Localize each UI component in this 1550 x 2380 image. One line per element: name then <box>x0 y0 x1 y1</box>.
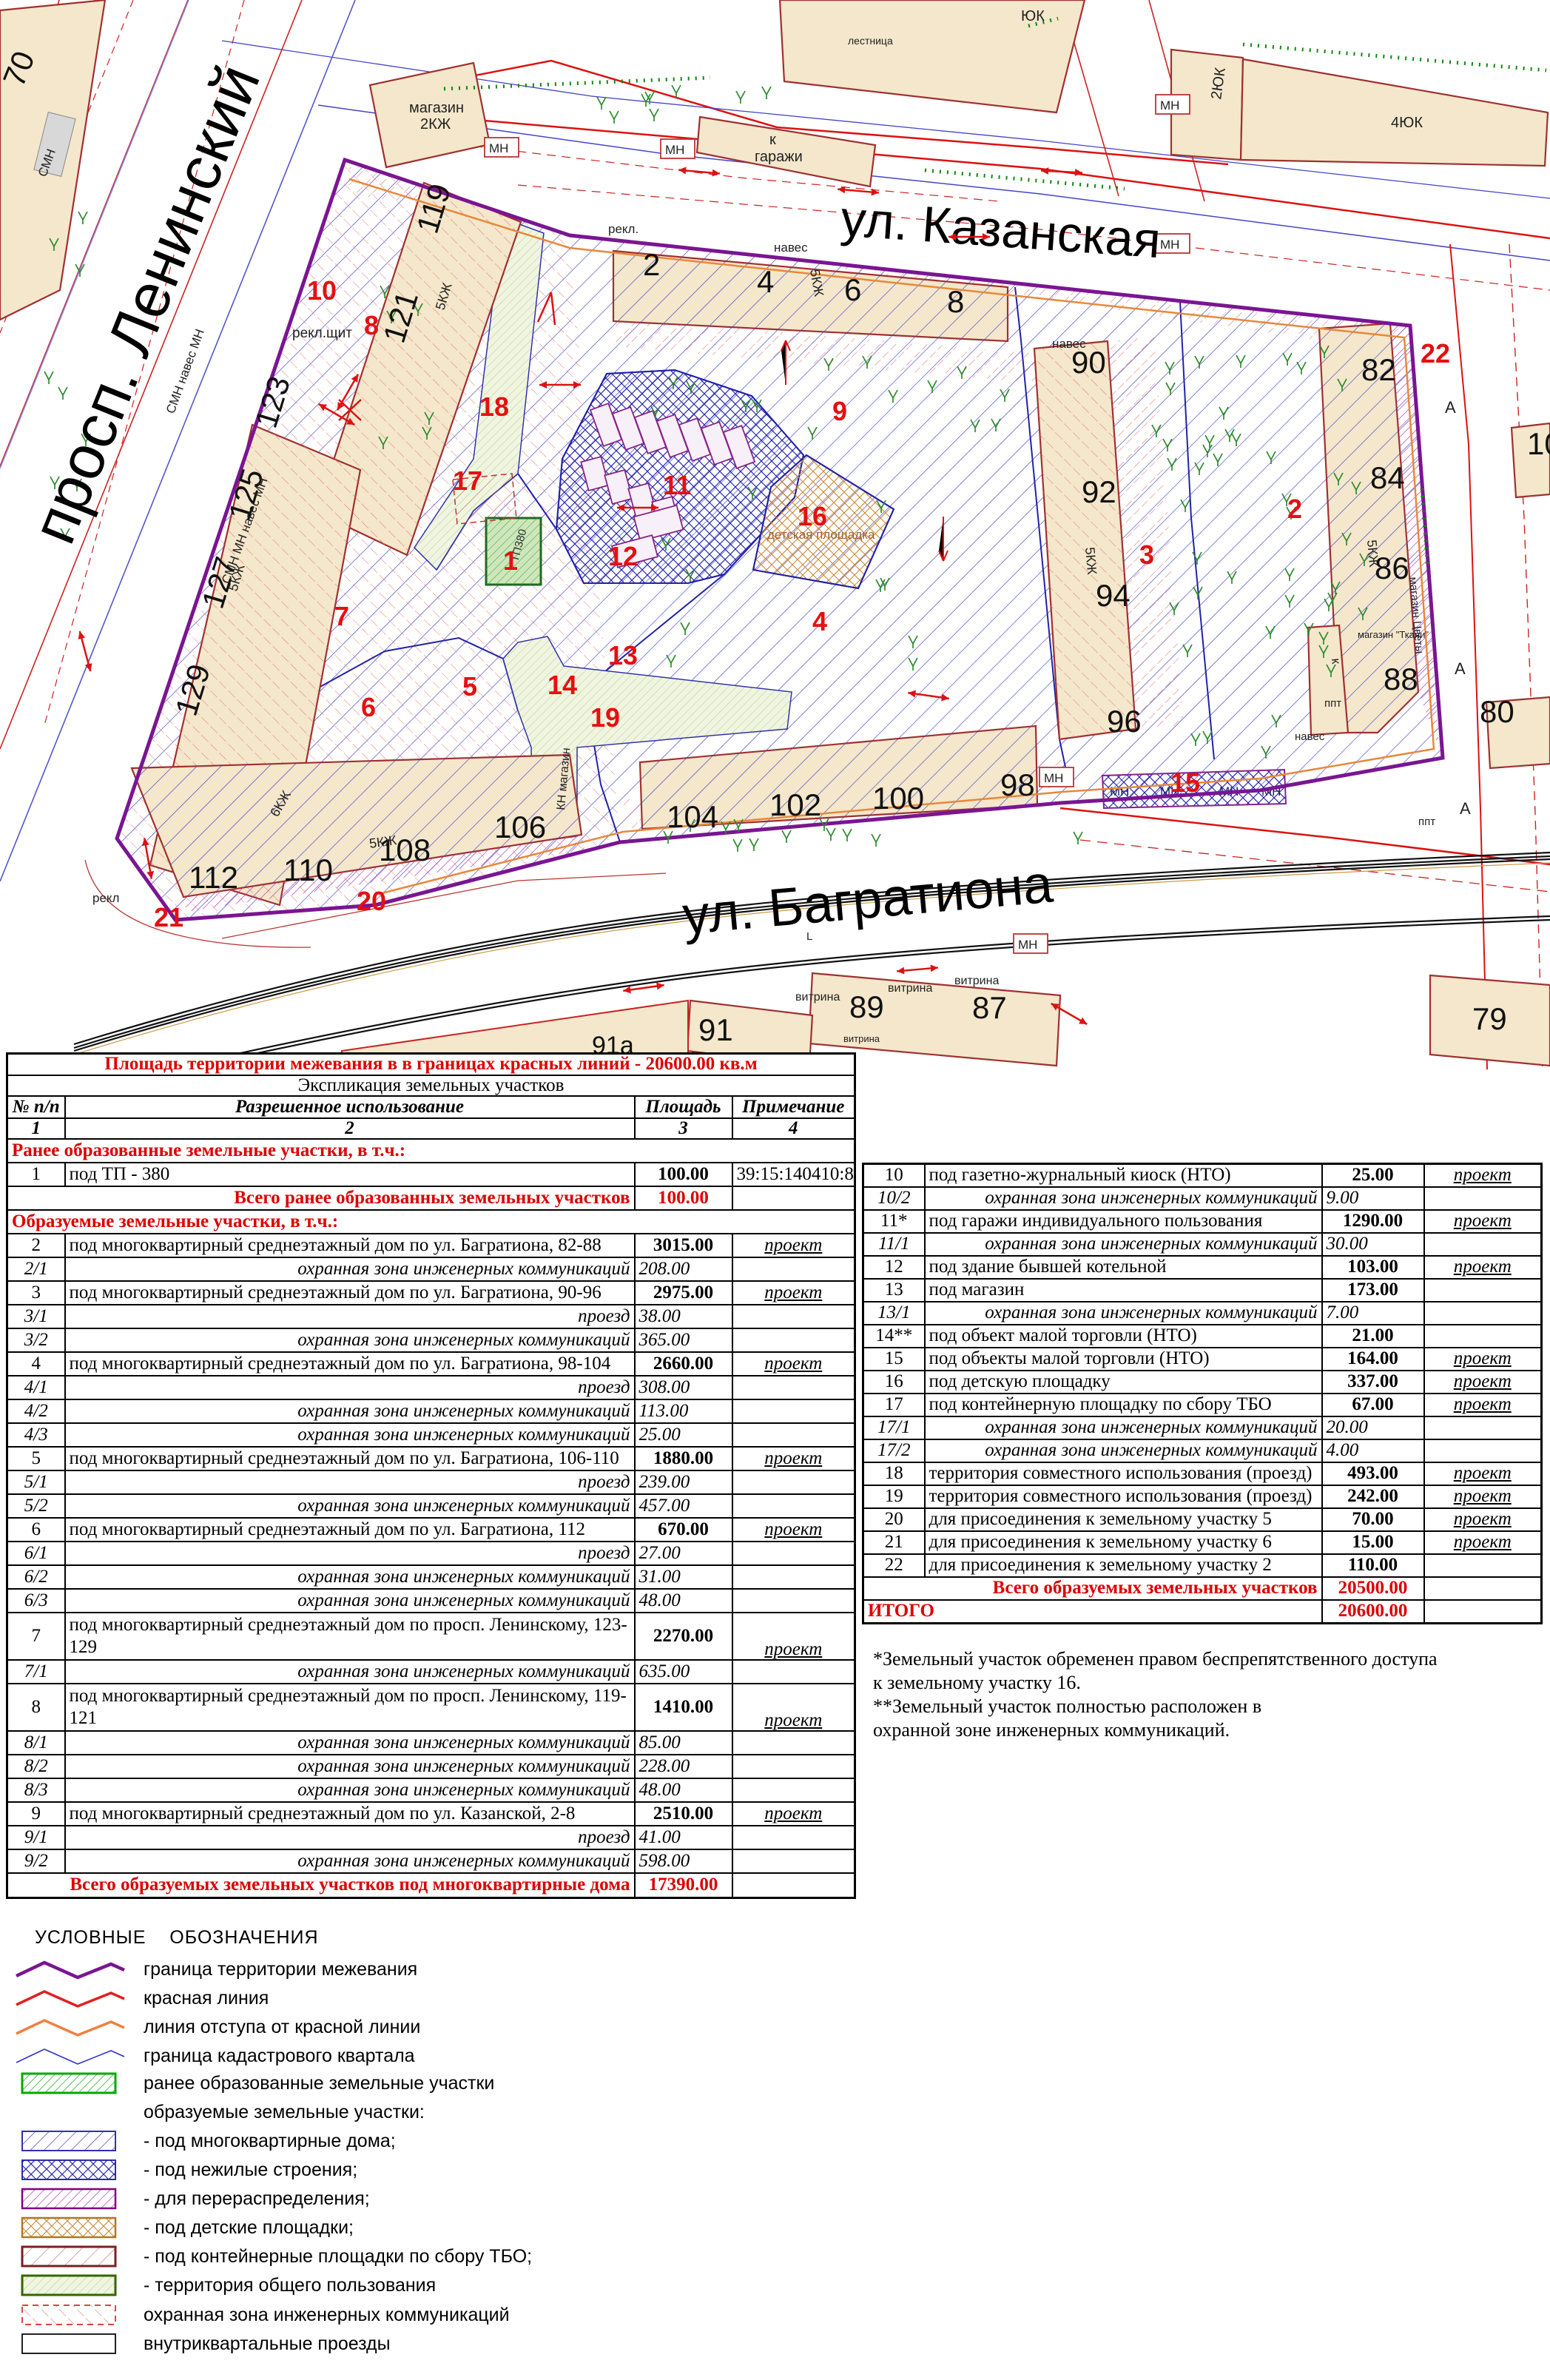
svg-text:102: 102 <box>769 787 821 822</box>
svg-text:94: 94 <box>1096 578 1131 613</box>
svg-text:МН: МН <box>1160 238 1179 252</box>
svg-text:100: 100 <box>872 781 924 816</box>
svg-text:20: 20 <box>357 886 386 916</box>
svg-text:- под детские площадки;: - под детские площадки; <box>144 2217 354 2238</box>
svg-text:ранее образованные земельные у: ранее образованные земельные участки <box>144 2073 494 2094</box>
svg-text:граница кадастрового квартала: граница кадастрового квартала <box>144 2045 415 2066</box>
svg-text:22: 22 <box>1421 338 1450 369</box>
svg-text:- под нежилые строения;: - под нежилые строения; <box>144 2159 357 2180</box>
svg-text:89: 89 <box>849 989 884 1024</box>
svg-text:к: к <box>769 132 776 148</box>
svg-text:- территория общего пользовани: - территория общего пользования <box>144 2275 436 2296</box>
svg-text:навес: навес <box>1052 337 1086 351</box>
svg-text:106: 106 <box>494 810 546 844</box>
svg-text:рекл.: рекл. <box>608 222 638 236</box>
svg-text:А: А <box>1455 659 1466 678</box>
svg-text:витрина: витрина <box>843 1033 880 1044</box>
svg-text:104: 104 <box>667 799 718 834</box>
svg-text:4ЮК: 4ЮК <box>1391 115 1423 131</box>
svg-text:2: 2 <box>643 247 660 282</box>
svg-text:МН: МН <box>665 143 684 157</box>
svg-text:7: 7 <box>334 601 349 631</box>
svg-text:5КЖ: 5КЖ <box>1082 547 1099 576</box>
svg-text:84: 84 <box>1370 460 1405 495</box>
svg-text:ппт: ппт <box>1418 816 1435 828</box>
svg-text:МН: МН <box>1018 938 1037 952</box>
svg-text:88: 88 <box>1384 662 1418 696</box>
svg-text:10: 10 <box>1527 426 1550 461</box>
svg-text:8: 8 <box>364 310 379 340</box>
svg-text:рекл.щит: рекл.щит <box>292 326 352 341</box>
svg-text:80: 80 <box>1480 694 1514 729</box>
svg-text:линия отступа от красной линии: линия отступа от красной линии <box>144 2017 420 2037</box>
svg-text:граница территории межевания: граница территории межевания <box>144 1959 417 1980</box>
svg-text:4: 4 <box>757 264 774 299</box>
svg-text:13: 13 <box>608 640 638 670</box>
svg-text:15: 15 <box>1170 767 1200 798</box>
svg-text:17: 17 <box>453 465 482 496</box>
svg-text:лестница: лестница <box>848 35 893 47</box>
svg-text:14: 14 <box>547 670 577 700</box>
svg-text:92: 92 <box>1082 474 1116 509</box>
svg-text:витрина: витрина <box>888 982 932 995</box>
svg-text:- под многоквартирные дома;: - под многоквартирные дома; <box>144 2131 396 2151</box>
svg-text:А: А <box>1460 799 1471 818</box>
svg-text:9: 9 <box>832 396 847 426</box>
svg-text:МН: МН <box>1110 784 1129 799</box>
svg-text:82: 82 <box>1361 352 1396 387</box>
svg-text:1: 1 <box>503 545 518 576</box>
svg-text:магазин: магазин <box>409 100 464 116</box>
svg-text:гаражи: гаражи <box>755 149 803 165</box>
svg-text:98: 98 <box>1000 767 1035 802</box>
svg-text:11: 11 <box>663 470 691 500</box>
svg-text:2КЖ: 2КЖ <box>420 116 451 132</box>
svg-text:2: 2 <box>1287 494 1302 524</box>
svg-text:навес: навес <box>1295 730 1325 743</box>
svg-text:внутриквартальные проезды: внутриквартальные проезды <box>144 2333 391 2354</box>
svg-text:87: 87 <box>972 990 1007 1025</box>
svg-text:16: 16 <box>798 501 827 531</box>
svg-text:магазин "Ткани": магазин "Ткани" <box>1358 629 1429 640</box>
svg-text:МН: МН <box>489 141 508 155</box>
svg-text:витрина: витрина <box>795 991 840 1004</box>
svg-text:рекл: рекл <box>92 891 119 905</box>
svg-text:110: 110 <box>283 853 333 887</box>
svg-text:- под контейнерные площадки по: - под контейнерные площадки по сбору ТБО… <box>144 2246 532 2267</box>
svg-text:ЮК: ЮК <box>1021 8 1045 24</box>
svg-text:МН: МН <box>1160 98 1179 112</box>
svg-text:ппт: ппт <box>1324 697 1341 710</box>
svg-text:4: 4 <box>812 606 827 636</box>
svg-text:18: 18 <box>479 391 509 422</box>
svg-text:6: 6 <box>844 272 861 307</box>
svg-text:А: А <box>1445 398 1456 417</box>
svg-text:79: 79 <box>1472 1001 1507 1036</box>
svg-text:образуемые земельные участки:: образуемые земельные участки: <box>144 2102 425 2122</box>
svg-text:96: 96 <box>1107 704 1142 739</box>
svg-text:91: 91 <box>698 1012 733 1047</box>
svg-text:охранная зона инженерных комму: охранная зона инженерных коммуникаций <box>144 2305 510 2325</box>
svg-text:112: 112 <box>189 860 238 895</box>
svg-text:МН: МН <box>1044 771 1063 785</box>
svg-text:5: 5 <box>462 671 477 702</box>
svg-text:8: 8 <box>947 284 964 319</box>
svg-text:5КЖ: 5КЖ <box>1364 539 1381 568</box>
svg-text:3: 3 <box>1139 539 1154 570</box>
svg-text:УСЛОВНЫЕ ОБОЗНАЧЕНИЯ: УСЛОВНЫЕ ОБОЗНАЧЕНИЯ <box>35 1927 319 1948</box>
svg-text:6: 6 <box>361 692 376 722</box>
svg-text:навес: навес <box>774 241 808 255</box>
svg-text:красная линия: красная линия <box>144 1988 269 2008</box>
svg-text:10: 10 <box>307 275 337 306</box>
svg-text:12: 12 <box>608 541 638 571</box>
svg-text:21: 21 <box>154 902 183 932</box>
svg-text:19: 19 <box>590 702 620 733</box>
svg-text:- для перераспределения;: - для перераспределения; <box>144 2188 370 2209</box>
svg-text:витрина: витрина <box>954 975 999 987</box>
